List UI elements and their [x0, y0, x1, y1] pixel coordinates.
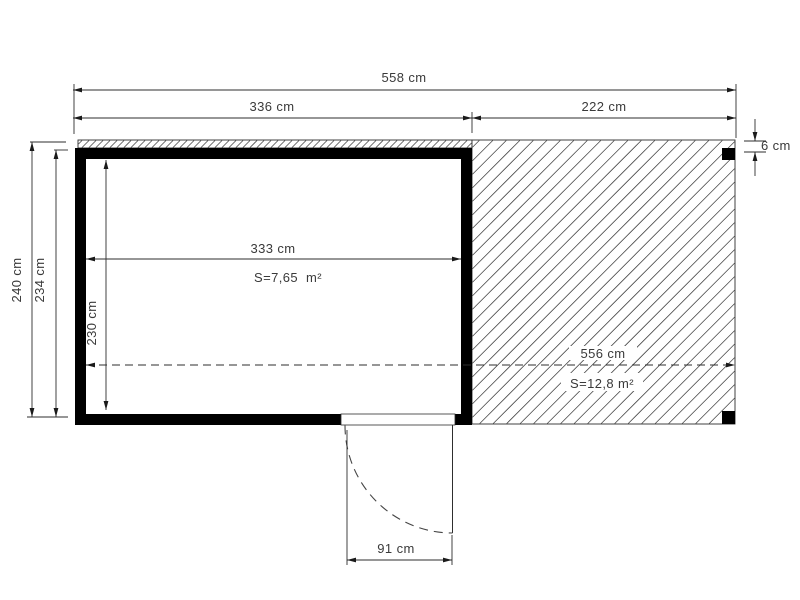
dimension-arrow	[104, 401, 109, 410]
top-edge-strip	[78, 140, 472, 148]
dimension-arrow	[452, 257, 461, 262]
label-cabin-width: 336 cm	[249, 99, 294, 114]
label-overall-width: 558 cm	[381, 70, 426, 85]
dimension-arrow	[86, 257, 95, 262]
label-terrace-area: S=12,8 m²	[570, 376, 634, 391]
floor-plan-drawing: 558 cm 336 cm 222 cm 6 cm 240 cm 234 cm …	[0, 0, 800, 600]
cabin-walls	[75, 148, 472, 425]
dimension-arrow	[753, 132, 758, 141]
label-overall-depth: 240 cm	[9, 257, 24, 302]
dimension-arrow	[753, 152, 758, 161]
label-terrace-width: 222 cm	[581, 99, 626, 114]
dimension-arrow	[54, 408, 59, 417]
dimension-arrow	[86, 363, 95, 368]
dimension-arrow	[727, 116, 736, 121]
dimension-arrow	[54, 150, 59, 159]
dimension-arrow	[727, 88, 736, 93]
dimension-arrow	[30, 142, 35, 151]
label-edge-thickness: 6 cm	[761, 138, 791, 153]
dimension-arrow	[347, 558, 356, 563]
label-cabin-area: S=7,65 m²	[254, 270, 322, 285]
door-opening	[341, 414, 455, 425]
dimension-arrow	[30, 408, 35, 417]
corner-post-bottom-right	[722, 411, 735, 424]
corner-post-top-right	[722, 148, 735, 160]
label-cabin-inner-depth: 230 cm	[84, 300, 99, 345]
dimension-arrow	[472, 116, 481, 121]
cabin-wall-right	[461, 148, 472, 425]
label-terrace-length: 556 cm	[580, 346, 625, 361]
dimension-arrow	[463, 116, 472, 121]
cabin-wall-bottom	[75, 414, 341, 425]
dimension-arrow	[104, 160, 109, 169]
label-inner-depth: 234 cm	[32, 257, 47, 302]
door-swing-arc	[345, 426, 453, 534]
label-door-width: 91 cm	[377, 541, 414, 556]
door	[341, 414, 455, 533]
cabin-wall-bottom-stub	[455, 414, 472, 425]
dimension-arrow	[443, 558, 452, 563]
floor-plan-canvas: 558 cm 336 cm 222 cm 6 cm 240 cm 234 cm …	[0, 0, 800, 600]
label-cabin-inner-width: 333 cm	[250, 241, 295, 256]
cabin-wall-top	[75, 148, 472, 159]
cabin-wall-left	[75, 148, 86, 425]
